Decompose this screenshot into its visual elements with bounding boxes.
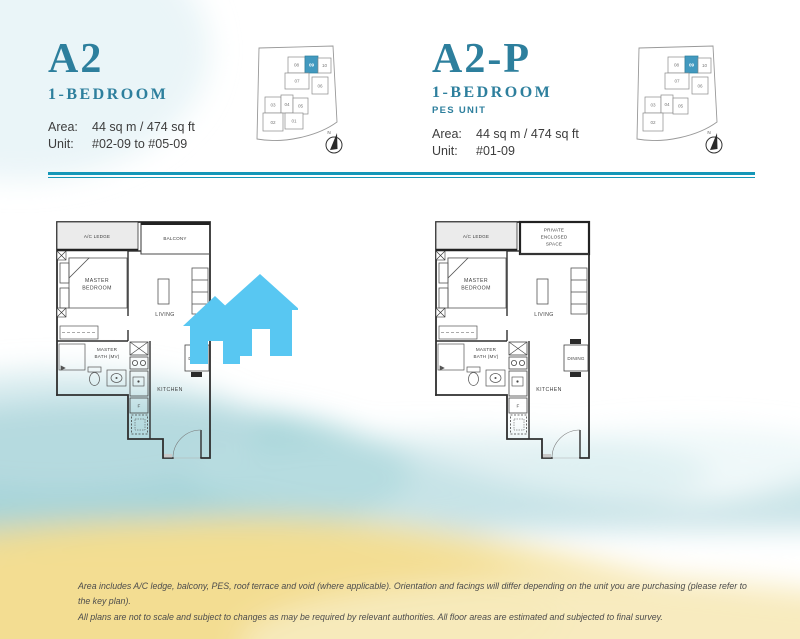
wardrobe <box>60 326 98 339</box>
fridge-label: F <box>137 404 140 409</box>
fridge-label: F <box>516 404 519 409</box>
master-bedroom-label-2: BEDROOM <box>82 286 112 292</box>
balcony-label: BALCONY <box>163 236 186 241</box>
unit-stack-label: 06 <box>697 83 703 88</box>
teal-divider-rule <box>48 172 755 178</box>
toilet-bowl <box>90 373 100 386</box>
kitchen-counter <box>130 371 148 396</box>
master-bath-label-1: MASTER <box>97 347 118 352</box>
outer-walls <box>436 222 589 458</box>
nightstand <box>60 263 69 283</box>
unit-stack-label: 05 <box>678 104 684 109</box>
dining-chair <box>570 372 581 377</box>
unit-stack-label: 02 <box>270 120 276 125</box>
coffee-table <box>537 279 548 304</box>
north-compass-icon: N <box>706 130 722 153</box>
right-area-value: 44 sq m / 474 sq ft <box>476 126 579 143</box>
left-area-value: 44 sq m / 474 sq ft <box>92 119 195 136</box>
left-key-plan: 08 09 10 07 06 03 04 05 02 01 N <box>252 42 357 162</box>
living-label: LIVING <box>534 312 553 318</box>
private-enclosed-space-room: PRIVATE ENCLOSED SPACE <box>520 222 589 254</box>
disclaimer-text: Area includes A/C ledge, balcony, PES, r… <box>78 579 758 625</box>
right-unit-header: A2-P 1-BEDROOM PES UNIT Area: 44 sq m / … <box>432 38 579 160</box>
living-furniture <box>537 268 587 314</box>
dining-chair <box>570 339 581 344</box>
kitchen-label: KITCHEN <box>157 387 183 393</box>
wardrobe <box>439 326 477 339</box>
shower <box>59 344 85 370</box>
master-bedroom-label-1: MASTER <box>464 278 488 284</box>
master-bath-label-1: MASTER <box>476 347 497 352</box>
unit-stack-label: 06 <box>317 83 323 88</box>
unit-stack-label: 07 <box>674 79 680 84</box>
right-unit-subtype: PES UNIT <box>432 105 579 116</box>
nightstand <box>439 263 448 283</box>
entry-threshold <box>543 454 551 458</box>
right-unit-value: #01-09 <box>476 143 515 160</box>
pes-label-3: SPACE <box>546 242 562 247</box>
shower <box>438 344 464 370</box>
master-bath-label-2: BATH (MV) <box>95 354 120 359</box>
pes-label-1: PRIVATE <box>544 228 564 233</box>
north-compass-icon: N <box>326 130 342 153</box>
right-key-plan: 08 09 10 07 06 03 04 05 02 N <box>632 42 737 162</box>
houses-logo-watermark <box>183 268 298 370</box>
ac-ledge-room: A/C LEDGE <box>436 222 517 250</box>
left-unit-code: A2 <box>48 38 195 80</box>
unit-stack-label: 02 <box>650 120 656 125</box>
entrance-door <box>552 430 580 458</box>
ac-ledge-room: A/C LEDGE <box>57 222 138 250</box>
kitchen-label: KITCHEN <box>536 387 562 393</box>
house-icon <box>220 274 298 356</box>
sofa <box>571 268 587 314</box>
entrance-door <box>173 430 201 458</box>
left-unit-value: #02-09 to #05-09 <box>92 136 187 153</box>
svg-text:N: N <box>327 130 330 135</box>
left-unit-label: Unit: <box>48 136 92 153</box>
svg-text:N: N <box>707 130 710 135</box>
left-unit-type: 1-BEDROOM <box>48 86 195 104</box>
unit-stack-label-highlighted: 09 <box>689 62 695 67</box>
toilet-tank <box>467 367 480 372</box>
left-unit-specs: Area: 44 sq m / 474 sq ft Unit: #02-09 t… <box>48 119 195 153</box>
unit-stack-label: 05 <box>298 104 304 109</box>
nightstand <box>60 288 69 308</box>
nightstand <box>439 288 448 308</box>
living-label: LIVING <box>155 312 174 318</box>
wall-vent-boxes <box>57 251 66 317</box>
left-unit-header: A2 1-BEDROOM Area: 44 sq m / 474 sq ft U… <box>48 38 195 153</box>
right-unit-type: 1-BEDROOM <box>432 84 579 102</box>
toilet-tank <box>88 367 101 372</box>
ac-ledge-label: A/C LEDGE <box>463 234 489 239</box>
floorplan-brochure-page: { "left_section": { "code": "A2", "type"… <box>0 0 800 639</box>
left-area-label: Area: <box>48 119 92 136</box>
right-area-label: Area: <box>432 126 476 143</box>
right-unit-specs: Area: 44 sq m / 474 sq ft Unit: #01-09 <box>432 126 579 160</box>
unit-stack-label: 03 <box>650 103 656 108</box>
master-bath-label-2: BATH (MV) <box>474 354 499 359</box>
dining-chair <box>191 372 202 377</box>
toilet-bowl <box>469 373 479 386</box>
unit-stack-label: 10 <box>322 63 328 68</box>
kitchen-fixtures <box>130 342 148 434</box>
unit-stack-label: 07 <box>294 79 300 84</box>
pes-label-2: ENCLOSED <box>541 235 568 240</box>
ac-ledge-label: A/C LEDGE <box>84 234 110 239</box>
balcony-room: BALCONY <box>141 222 210 254</box>
unit-stack-label: 10 <box>702 63 708 68</box>
unit-stack-label: 04 <box>284 102 290 107</box>
unit-stack-label: 04 <box>664 102 670 107</box>
entry-threshold <box>164 454 172 458</box>
master-bedroom-label-2: BEDROOM <box>461 286 491 292</box>
unit-stack-label: 08 <box>294 63 300 68</box>
unit-stack-label: 03 <box>270 103 276 108</box>
right-unit-label: Unit: <box>432 143 476 160</box>
disclaimer-line-1: Area includes A/C ledge, balcony, PES, r… <box>78 579 758 610</box>
unit-stack-label: 08 <box>674 63 680 68</box>
unit-stack-label: 01 <box>291 119 297 124</box>
coffee-table <box>158 279 169 304</box>
disclaimer-line-2: All plans are not to scale and subject t… <box>78 610 758 625</box>
master-bedroom-label-1: MASTER <box>85 278 109 284</box>
wall-vent-boxes <box>436 251 445 317</box>
unit-stack-label-highlighted: 09 <box>309 62 315 67</box>
dining-label: DINING <box>567 356 585 361</box>
right-unit-code: A2-P <box>432 38 579 80</box>
kitchen-fixtures <box>509 342 527 434</box>
floor-plan-a2p: A/C LEDGE PRIVATE ENCLOSED SPACE MASTER … <box>434 218 594 468</box>
